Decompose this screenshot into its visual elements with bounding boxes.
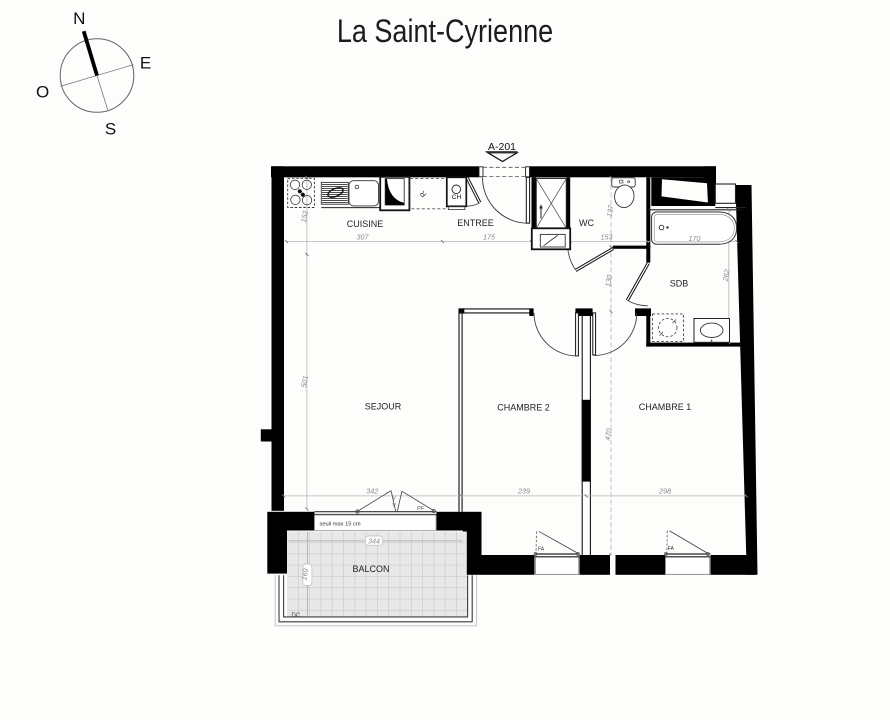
svg-text:seuil max 15 cm: seuil max 15 cm (320, 522, 361, 528)
svg-text:BALCON: BALCON (352, 564, 389, 574)
svg-text:344: 344 (368, 536, 380, 545)
svg-text:239: 239 (517, 487, 530, 496)
svg-text:298: 298 (658, 487, 671, 496)
svg-text:153: 153 (601, 232, 613, 241)
svg-text:La Saint-Cyrienne: La Saint-Cyrienne (337, 14, 553, 50)
svg-text:FA: FA (538, 547, 545, 553)
svg-text:170: 170 (689, 234, 701, 243)
svg-text:CH: CH (452, 194, 462, 201)
svg-text:N: N (73, 9, 85, 28)
svg-text:CUISINE: CUISINE (347, 219, 384, 229)
svg-text:CHAMBRE 1: CHAMBRE 1 (639, 402, 692, 412)
svg-text:V: V (392, 503, 396, 509)
svg-text:ENTREE: ENTREE (457, 218, 494, 228)
svg-text:WC: WC (579, 218, 594, 228)
svg-text:SEJOUR: SEJOUR (365, 402, 402, 412)
svg-text:DC: DC (291, 612, 300, 619)
svg-text:342: 342 (366, 486, 378, 495)
svg-text:CHAMBRE 2: CHAMBRE 2 (497, 403, 550, 413)
svg-text:307: 307 (357, 232, 370, 241)
svg-text:SDB: SDB (670, 279, 689, 289)
svg-text:175: 175 (483, 232, 496, 241)
svg-text:S: S (105, 120, 116, 139)
svg-text:E: E (140, 53, 151, 72)
svg-text:O: O (36, 82, 49, 101)
svg-text:A-201: A-201 (488, 141, 516, 153)
svg-text:V: V (392, 496, 396, 502)
svg-text:FA: FA (668, 546, 675, 552)
svg-text:PF: PF (417, 506, 425, 512)
